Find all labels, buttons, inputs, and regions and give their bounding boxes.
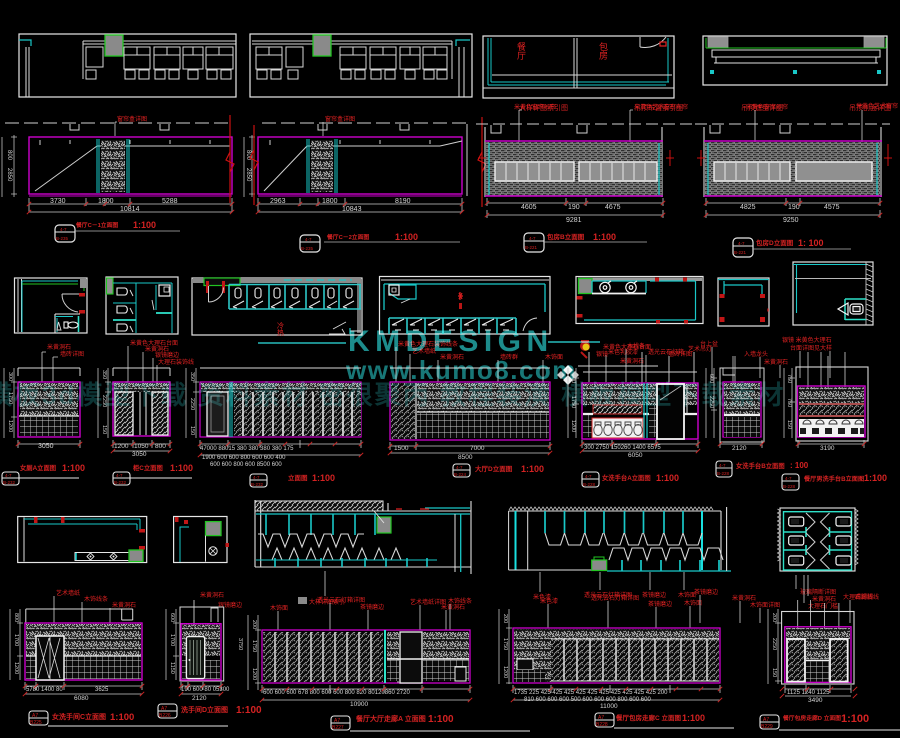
svg-text:200: 200	[251, 620, 257, 629]
svg-text:米黄色大理石台面: 米黄色大理石台面	[603, 343, 651, 351]
svg-text:大理石门槛: 大理石门槛	[808, 602, 838, 610]
svg-text:10814: 10814	[120, 206, 140, 213]
svg-text:米黄洞石: 米黄洞石	[200, 591, 224, 599]
svg-text:1:100: 1:100	[236, 705, 262, 716]
svg-text:3050: 3050	[132, 451, 147, 458]
svg-text:1:100: 1:100	[864, 473, 887, 483]
svg-text:洗手间D立面图: 洗手间D立面图	[181, 705, 228, 714]
svg-text:150: 150	[786, 420, 792, 429]
svg-text:大理石装饰线: 大理石装饰线	[158, 358, 194, 366]
svg-text:2850: 2850	[6, 168, 12, 182]
svg-text:8190: 8190	[395, 198, 411, 205]
svg-text:米黄洞石: 米黄洞石	[145, 345, 169, 353]
svg-text:1:100: 1:100	[170, 463, 193, 473]
svg-text:入墙龙头: 入墙龙头	[744, 350, 768, 358]
svg-text:800: 800	[245, 150, 251, 161]
svg-text:600: 600	[169, 613, 175, 622]
svg-text:包房: 包房	[598, 41, 608, 61]
svg-text:米黄洞石: 米黄洞石	[764, 358, 788, 366]
svg-text:米黄色窗帘纱帘: 米黄色窗帘纱帘	[746, 103, 788, 111]
svg-text:10843: 10843	[342, 206, 362, 213]
svg-text:B-228: B-228	[783, 484, 796, 489]
svg-text:6080: 6080	[74, 695, 89, 702]
svg-text:1200: 1200	[13, 662, 19, 674]
svg-text:4825: 4825	[740, 204, 756, 211]
svg-text:1:100: 1:100	[521, 464, 544, 474]
svg-text:包房B立面图: 包房B立面图	[547, 232, 585, 241]
svg-text:1200: 1200	[251, 668, 257, 680]
svg-text:200: 200	[771, 613, 777, 622]
svg-text:3490: 3490	[808, 697, 823, 704]
svg-text:餐厅: 餐厅	[516, 41, 526, 60]
svg-text:木饰线条: 木饰线条	[84, 595, 108, 603]
svg-text:窗帘盒详图: 窗帘盒详图	[117, 115, 147, 123]
svg-text:B-232: B-232	[251, 482, 264, 487]
svg-text:台面详图见大样: 台面详图见大样	[790, 344, 832, 352]
svg-text:米黄洞石: 米黄洞石	[47, 343, 71, 351]
svg-text:B-221: B-221	[525, 245, 538, 250]
svg-text:1:100: 1:100	[133, 220, 156, 230]
svg-text:1800: 1800	[322, 198, 338, 205]
svg-text:A7: A7	[161, 706, 167, 712]
svg-text:台上盆: 台上盆	[700, 340, 718, 348]
svg-text:茶镜磨边: 茶镜磨边	[694, 588, 718, 596]
svg-text:B-228: B-228	[583, 482, 596, 487]
svg-text:米黄色艺术窗帘: 米黄色艺术窗帘	[856, 102, 898, 110]
svg-text:B-228: B-228	[717, 471, 730, 476]
svg-text:1:100: 1:100	[395, 232, 418, 242]
svg-text:KMDESIGN: KMDESIGN	[348, 325, 554, 358]
svg-text:1800: 1800	[98, 198, 114, 205]
svg-text:艺术墙纸: 艺术墙纸	[56, 589, 80, 597]
svg-text:300 2750 150260 1400 6575: 300 2750 150260 1400 6575	[584, 445, 661, 451]
svg-text:银镜 米黄色大理石: 银镜 米黄色大理石	[782, 336, 832, 344]
svg-text:1500: 1500	[394, 445, 409, 452]
svg-text:2250: 2250	[771, 638, 777, 650]
svg-text:: 100: : 100	[790, 461, 809, 470]
svg-text:1200: 1200	[570, 420, 576, 432]
svg-text:B-224: B-224	[454, 472, 467, 477]
svg-text:女洗手台B立面图: 女洗手台B立面图	[736, 461, 785, 470]
svg-text:4-7: 4-7	[5, 473, 12, 478]
svg-text:餐厅男洗手台B立面图: 餐厅男洗手台B立面图	[804, 475, 864, 483]
svg-text:8500: 8500	[458, 454, 473, 461]
svg-text:1700: 1700	[13, 634, 19, 646]
svg-text:女洗手台A立面图: 女洗手台A立面图	[602, 473, 651, 482]
svg-text:4675: 4675	[605, 204, 621, 211]
svg-text:木饰面详图: 木饰面详图	[750, 601, 780, 609]
svg-text:4-7: 4-7	[738, 241, 745, 246]
svg-text:B-232: B-232	[3, 480, 16, 485]
svg-text:3625: 3625	[95, 687, 109, 693]
svg-text:A7: A7	[32, 713, 38, 719]
svg-text:1200: 1200	[114, 443, 129, 450]
svg-text:米黄洞石: 米黄洞石	[441, 603, 465, 611]
svg-text:810 600 600 600 500 600 600 60: 810 600 600 600 500 600 600 600 800 600 …	[524, 697, 651, 703]
svg-text:750: 750	[786, 374, 792, 383]
svg-text:米黄色大理石台面: 米黄色大理石台面	[130, 339, 178, 347]
svg-text:11000: 11000	[600, 703, 618, 710]
svg-text:B225: B225	[30, 720, 42, 726]
svg-text:包房D立面图: 包房D立面图	[756, 238, 794, 247]
svg-text:1:100: 1:100	[110, 712, 134, 723]
svg-text:5288: 5288	[162, 198, 178, 205]
svg-text:1:100: 1:100	[656, 473, 679, 483]
svg-text:4-7: 4-7	[785, 476, 792, 481]
svg-text:米黄色艺术窗帘布帘: 米黄色艺术窗帘布帘	[634, 103, 688, 111]
svg-text:7000: 7000	[470, 445, 485, 452]
svg-text:4-7: 4-7	[60, 227, 67, 232]
svg-text:3190: 3190	[820, 445, 835, 452]
svg-text:3050: 3050	[38, 443, 54, 450]
svg-text:B-221: B-221	[734, 250, 747, 255]
svg-text:银镜: 银镜	[596, 350, 608, 358]
svg-text:米色漆: 米色漆	[540, 597, 558, 605]
svg-text:女洗手间C立面图: 女洗手间C立面图	[52, 712, 106, 721]
svg-text:1:100: 1:100	[841, 713, 869, 725]
svg-text:1:100: 1:100	[682, 713, 705, 723]
svg-text:1900 600 600 800 600 600 400: 1900 600 600 800 600 600 400	[202, 455, 286, 461]
svg-text:750: 750	[786, 398, 792, 407]
svg-text:1735 225 425 425 425 425 425 4: 1735 225 425 425 425 425 425 425 425 425…	[514, 690, 668, 696]
svg-text:米黄洞石: 米黄洞石	[112, 601, 136, 609]
svg-text:柜C立面图: 柜C立面图	[133, 463, 163, 472]
svg-text:米黄洞石: 米黄洞石	[620, 357, 644, 365]
svg-text:餐厅C－1立面图: 餐厅C－1立面图	[75, 221, 118, 229]
svg-text:2120: 2120	[192, 695, 207, 702]
svg-text:大厅D立面图: 大厅D立面图	[475, 464, 513, 473]
svg-text:墙砖详图: 墙砖详图	[60, 350, 84, 358]
svg-text:米黄洞石: 米黄洞石	[732, 594, 756, 602]
svg-text:木饰面: 木饰面	[684, 599, 702, 607]
svg-text:3750: 3750	[237, 638, 243, 650]
svg-text:1125 1240 1125: 1125 1240 1125	[787, 690, 830, 696]
svg-text:47000 88015 380 380 380 380 17: 47000 88015 380 380 380 380 175	[200, 446, 294, 452]
svg-text:1200: 1200	[502, 666, 508, 678]
svg-text:4-7: 4-7	[305, 237, 312, 242]
svg-text:5780 1400 80: 5780 1400 80	[26, 687, 63, 693]
svg-text:B-235: B-235	[301, 246, 314, 251]
svg-text:4-7: 4-7	[585, 474, 592, 479]
svg-text:餐厅C－2立面图: 餐厅C－2立面图	[326, 233, 369, 241]
svg-text:银镜磨边: 银镜磨边	[218, 601, 242, 609]
svg-text:800: 800	[13, 613, 19, 622]
svg-text:透光云石灯箱详图: 透光云石灯箱详图	[591, 594, 639, 602]
svg-text:1700: 1700	[169, 634, 175, 646]
svg-text:10900: 10900	[350, 701, 368, 708]
svg-text:餐厅包房走廊C 立面图: 餐厅包房走廊C 立面图	[615, 713, 682, 722]
svg-text:9250: 9250	[783, 217, 799, 224]
svg-text:B228: B228	[596, 722, 608, 728]
svg-text:200: 200	[502, 614, 508, 623]
svg-text:1750: 1750	[251, 640, 257, 652]
svg-text:B227: B227	[332, 725, 344, 731]
svg-text:600 600 800 600 8500 600: 600 600 800 600 8500 600	[210, 462, 282, 468]
svg-text:6050: 6050	[628, 452, 643, 459]
svg-text:透光云石灯箱详图: 透光云石灯箱详图	[317, 596, 365, 604]
svg-text:150: 150	[189, 426, 195, 435]
svg-text:150: 150	[101, 425, 107, 434]
svg-text:木饰线条: 木饰线条	[448, 597, 472, 605]
svg-text:横板3d模型下载 资料素材 密很聚丙 教程装潢 横板模型下载: 横板3d模型下载 资料素材 密很聚丙 教程装潢 横板模型下载素材	[0, 380, 785, 410]
svg-text:米黄洞石: 米黄洞石	[812, 595, 836, 603]
svg-text:B-235: B-235	[56, 236, 69, 241]
svg-text:1:100: 1:100	[428, 714, 454, 725]
svg-text:立面图: 立面图	[288, 473, 308, 482]
svg-text:1200: 1200	[7, 420, 13, 432]
svg-text:A7: A7	[598, 715, 604, 721]
svg-text:800: 800	[6, 150, 12, 161]
svg-text:1: 100: 1: 100	[798, 238, 824, 248]
svg-text:A7: A7	[763, 717, 769, 723]
svg-text:4605: 4605	[521, 204, 537, 211]
svg-text:B226: B226	[159, 713, 171, 719]
svg-text:4575: 4575	[824, 204, 840, 211]
svg-text:9281: 9281	[566, 217, 582, 224]
svg-text:银镜磨边: 银镜磨边	[155, 351, 179, 359]
svg-text:B229: B229	[761, 724, 773, 730]
svg-text:1150: 1150	[169, 662, 175, 674]
svg-text:B-232: B-232	[114, 480, 127, 485]
svg-text:350: 350	[101, 370, 107, 379]
svg-text:4-7: 4-7	[719, 463, 726, 468]
svg-text:1750: 1750	[502, 638, 508, 650]
svg-text:4-7: 4-7	[529, 236, 536, 241]
svg-text:4-7: 4-7	[253, 475, 260, 480]
svg-text:4-7: 4-7	[456, 465, 463, 470]
svg-text:女厕A立面图: 女厕A立面图	[20, 463, 56, 472]
svg-text:1:100: 1:100	[312, 473, 335, 483]
svg-text:A7: A7	[334, 718, 340, 724]
svg-text:茶镜磨边: 茶镜磨边	[642, 591, 666, 599]
svg-text:窗帘盒详图: 窗帘盒详图	[325, 115, 355, 123]
svg-text:1:100: 1:100	[593, 232, 616, 242]
svg-text:800: 800	[155, 443, 166, 450]
svg-text:茶镜磨边: 茶镜磨边	[648, 600, 672, 608]
svg-text:冷热: 冷热	[277, 321, 285, 337]
svg-text:玻璃隔断详图: 玻璃隔断详图	[800, 588, 836, 596]
svg-text:2963: 2963	[270, 198, 286, 205]
svg-text:餐厅大厅走廊A 立面图: 餐厅大厅走廊A 立面图	[355, 714, 426, 723]
svg-text:2120: 2120	[732, 445, 747, 452]
svg-text:木饰面: 木饰面	[270, 604, 288, 612]
svg-text:茶镜磨边: 茶镜磨边	[360, 603, 384, 611]
svg-text:190: 190	[568, 204, 580, 211]
svg-text:大理石踢脚线: 大理石踢脚线	[843, 593, 879, 601]
svg-text:餐厅包房走廊D 立面图: 餐厅包房走廊D 立面图	[782, 714, 841, 722]
svg-text:150: 150	[771, 668, 777, 677]
svg-text:1050: 1050	[134, 443, 149, 450]
svg-text:2850: 2850	[245, 168, 251, 182]
svg-text:4-7: 4-7	[116, 473, 123, 478]
svg-text:1:100: 1:100	[62, 463, 85, 473]
svg-text:3730: 3730	[50, 198, 66, 205]
